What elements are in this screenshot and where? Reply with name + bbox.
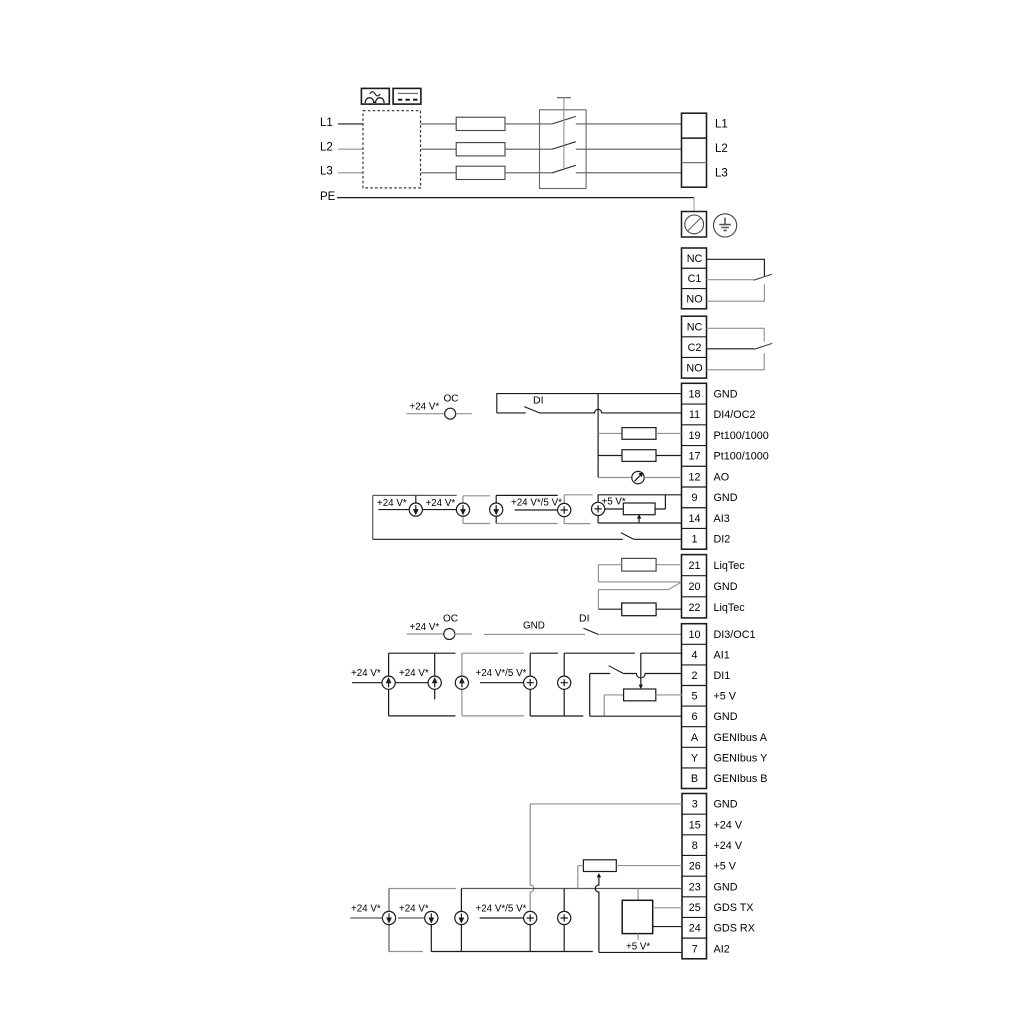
svg-text:+5 V: +5 V [714, 691, 737, 703]
svg-text:+24 V*: +24 V* [377, 498, 407, 509]
svg-text:22: 22 [688, 602, 700, 614]
svg-text:+24 V: +24 V [714, 840, 743, 852]
svg-text:15: 15 [689, 819, 701, 831]
svg-text:PE: PE [320, 191, 336, 203]
svg-text:DI: DI [579, 613, 590, 625]
svg-text:C1: C1 [688, 273, 702, 285]
svg-text:NC: NC [687, 253, 703, 265]
svg-text:11: 11 [689, 409, 700, 421]
svg-text:AO: AO [714, 471, 730, 483]
svg-text:LiqTec: LiqTec [714, 560, 746, 572]
svg-text:Pt100/1000: Pt100/1000 [714, 430, 769, 442]
svg-text:2: 2 [691, 670, 697, 682]
svg-text:3: 3 [692, 799, 698, 811]
svg-text:+24 V: +24 V [714, 819, 743, 831]
svg-text:NO: NO [686, 363, 702, 375]
svg-text:+24 V*: +24 V* [410, 622, 440, 633]
svg-text:+24 V*: +24 V* [410, 402, 440, 413]
svg-text:5: 5 [691, 691, 697, 703]
svg-text:4: 4 [691, 649, 697, 661]
svg-text:6: 6 [691, 711, 697, 723]
svg-text:10: 10 [688, 629, 700, 641]
svg-text:LiqTec: LiqTec [714, 602, 746, 614]
svg-text:GENIbus Y: GENIbus Y [714, 752, 768, 764]
svg-text:21: 21 [688, 560, 700, 572]
svg-text:L1: L1 [320, 117, 333, 129]
svg-text:L3: L3 [320, 166, 333, 178]
svg-text:DI: DI [533, 394, 544, 406]
svg-text:8: 8 [692, 840, 698, 852]
svg-text:+24 V*: +24 V* [399, 668, 429, 679]
svg-text:19: 19 [688, 430, 700, 442]
svg-text:L2: L2 [320, 142, 333, 154]
svg-text:1: 1 [691, 534, 697, 546]
svg-text:C2: C2 [688, 342, 702, 354]
svg-text:9: 9 [691, 492, 697, 504]
svg-text:L3: L3 [715, 168, 728, 180]
svg-text:L2: L2 [715, 143, 728, 155]
svg-text:AI2: AI2 [714, 943, 730, 955]
svg-text:GND: GND [714, 581, 738, 593]
svg-text:NC: NC [687, 321, 703, 333]
svg-text:DI1: DI1 [714, 670, 731, 682]
svg-text:23: 23 [689, 881, 701, 893]
svg-text:20: 20 [688, 581, 700, 593]
svg-text:+24 V*: +24 V* [426, 498, 456, 509]
svg-text:+24 V*/5 V*: +24 V*/5 V* [511, 497, 562, 508]
svg-text:GND: GND [714, 492, 738, 504]
svg-text:+24 V*: +24 V* [399, 904, 429, 915]
svg-text:+24 V*: +24 V* [351, 904, 381, 915]
svg-text:12: 12 [688, 471, 700, 483]
svg-text:Pt100/1000: Pt100/1000 [714, 451, 769, 463]
svg-text:24: 24 [689, 923, 701, 935]
svg-text:25: 25 [689, 902, 701, 914]
svg-text:GND: GND [714, 711, 738, 723]
svg-text:17: 17 [688, 451, 700, 463]
svg-text:+5 V*: +5 V* [626, 942, 650, 953]
svg-text:A: A [691, 732, 699, 744]
svg-text:GND: GND [714, 388, 738, 400]
svg-text:OC: OC [444, 394, 459, 405]
svg-text:DI2: DI2 [714, 534, 731, 546]
svg-text:L1: L1 [715, 119, 728, 131]
svg-text:14: 14 [688, 513, 700, 525]
svg-text:DI3/OC1: DI3/OC1 [714, 629, 756, 641]
svg-text:AI3: AI3 [714, 513, 730, 525]
svg-text:B: B [691, 773, 698, 785]
svg-text:+24 V*/5 V*: +24 V*/5 V* [476, 668, 527, 679]
svg-text:GND: GND [714, 881, 738, 893]
svg-text:AI1: AI1 [714, 649, 730, 661]
svg-text:26: 26 [689, 861, 701, 873]
svg-text:GDS TX: GDS TX [714, 902, 754, 914]
svg-text:GENIbus B: GENIbus B [714, 773, 768, 785]
svg-text:GENIbus A: GENIbus A [714, 732, 768, 744]
svg-text:+24 V*: +24 V* [351, 668, 381, 679]
svg-text:+5 V*: +5 V* [602, 497, 626, 508]
svg-text:7: 7 [692, 943, 698, 955]
svg-text:GDS RX: GDS RX [714, 923, 755, 935]
svg-text:Y: Y [691, 752, 698, 764]
svg-text:+24 V*/5 V*: +24 V*/5 V* [476, 904, 527, 915]
svg-text:18: 18 [688, 388, 700, 400]
svg-text:GND: GND [714, 799, 738, 811]
svg-text:DI4/OC2: DI4/OC2 [714, 409, 756, 421]
svg-text:NO: NO [686, 293, 702, 305]
svg-text:GND: GND [523, 621, 545, 632]
svg-text:OC: OC [443, 614, 458, 625]
svg-text:+5 V: +5 V [714, 861, 737, 873]
